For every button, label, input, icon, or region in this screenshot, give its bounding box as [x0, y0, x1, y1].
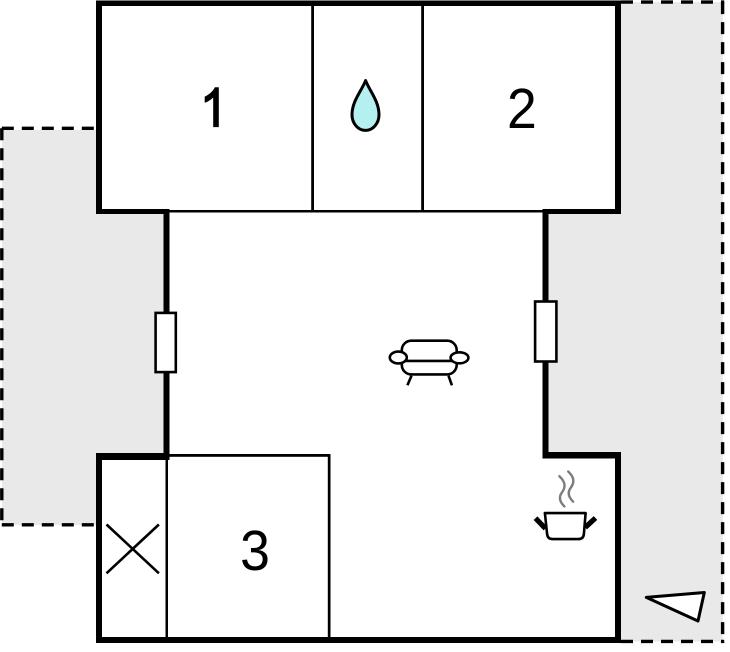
- svg-text:3: 3: [240, 519, 270, 583]
- svg-text:2: 2: [507, 77, 537, 141]
